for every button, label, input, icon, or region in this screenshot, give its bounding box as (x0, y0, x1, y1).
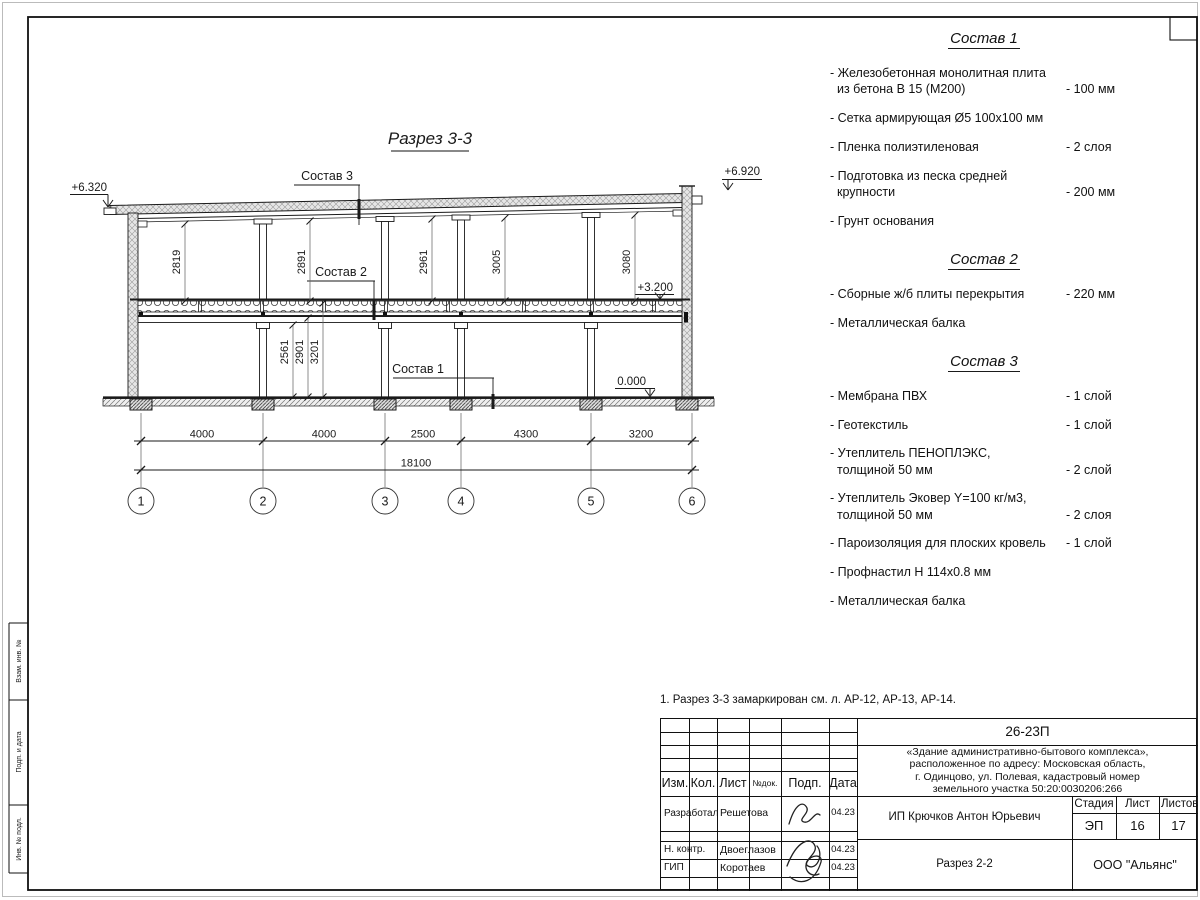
spec-item: - Геотекстиль- 1 слой (830, 417, 1138, 433)
spec-value: - 1 слой (1066, 535, 1138, 551)
tb-sheets-value: 17 (1159, 813, 1198, 839)
tb-sheet-title: Разрез 2-2 (857, 839, 1072, 891)
tb-name: Двоеглазов (717, 841, 784, 859)
tb-header-list: Лист (717, 771, 749, 796)
right-wall (682, 186, 692, 398)
sostav3-label: Состав 3 (301, 169, 353, 183)
tb-header-ndok: №док. (749, 771, 781, 796)
spec-item: - Железобетонная монолитная плитаиз бето… (830, 65, 1138, 98)
room-height-dim: 3080 (621, 250, 633, 274)
tb-header-kol: Кол. (689, 771, 717, 796)
view-title: Разрез 3-3 (388, 129, 473, 148)
tb-doc-code: 26-23П (857, 719, 1198, 745)
tb-company: ООО "Альянс" (1072, 839, 1198, 891)
sostav2-label: Состав 2 (315, 265, 367, 279)
lower-dim-chains: 2561 2901 3201 (279, 300, 327, 401)
elevation-right: +6.920 (725, 166, 761, 178)
spec-item: - Профнастил Н 114х0.8 мм (830, 564, 1138, 580)
tb-name: Решетова (717, 796, 784, 831)
tb-role: Н. контр. (661, 841, 720, 859)
tb-header-data: Дата (829, 771, 857, 796)
sheet-note: 1. Разрез 3-3 замаркирован см. л. АР-12,… (660, 694, 956, 706)
signature-1 (789, 804, 820, 824)
stamp-label: Подп. и дата (16, 731, 23, 772)
axis-bubbles (128, 488, 705, 514)
span-dim: 2500 (411, 429, 435, 441)
span-dim: 3200 (629, 429, 653, 441)
signature-3 (790, 856, 821, 882)
corner-stamp-box (1170, 17, 1197, 40)
room-height-dim: 2819 (171, 250, 183, 274)
signature-2 (787, 841, 820, 867)
axis-number: 2 (260, 495, 267, 509)
title-block: Изм. Кол. Лист №док. Подп. Дата Разработ… (660, 718, 1197, 890)
spec-item: - Сборные ж/б плиты перекрытия- 220 мм (830, 286, 1138, 302)
upper-dim-chains: 2819 2891 2961 3005 3080 (171, 212, 639, 305)
total-dim: 18100 (401, 458, 432, 470)
span-dim: 4000 (190, 429, 214, 441)
tb-project-name: «Здание административно-бытового комплек… (857, 745, 1198, 796)
spec-value: - 1 слой (1066, 388, 1138, 404)
spec-item: - Мембрана ПВХ- 1 слой (830, 388, 1138, 404)
tb-date: 04.23 (829, 841, 857, 859)
spec-item: - Утеплитель ПЕНОПЛЭКС,толщиной 50 мм- 2… (830, 445, 1138, 478)
tb-sheets-label: Листов (1159, 796, 1200, 813)
tb-date: 04.23 (829, 796, 857, 831)
spec-item: - Пароизоляция для плоских кровель- 1 сл… (830, 535, 1138, 551)
tb-role: ГИП (661, 859, 720, 877)
spec-value: - 200 мм (1066, 184, 1138, 200)
layer-spec-lists: Состав 1 - Железобетонная монолитная пли… (830, 30, 1138, 622)
tb-stage-value: ЭП (1072, 813, 1116, 839)
spec-item: - Грунт основания (830, 213, 1138, 229)
room-height-dim: 2961 (418, 250, 430, 274)
drawing-sheet: { "drawing": { "title": "Разрез 3-3", "e… (0, 0, 1200, 900)
spec-heading: Состав 3 (830, 353, 1138, 370)
left-wall (128, 213, 138, 398)
room-height-dim: 2891 (296, 250, 308, 274)
spec-item: - Подготовка из песка среднейкрупности- … (830, 168, 1138, 201)
axis-number: 4 (458, 495, 465, 509)
room-height-dim: 3005 (491, 250, 503, 274)
span-dim: 4000 (312, 429, 336, 441)
tb-date: 04.23 (829, 859, 857, 877)
spec-heading: Состав 1 (830, 30, 1138, 47)
spec-value: - 2 слоя (1066, 507, 1138, 523)
spec-value: - 1 слой (1066, 417, 1138, 433)
bottom-dimensions: 4000 4000 2500 4300 3200 18100 1 2 3 4 5… (128, 413, 705, 514)
spec-value: - 220 мм (1066, 286, 1138, 302)
spec-item: - Пленка полиэтиленовая- 2 слоя (830, 139, 1138, 155)
tb-stage-label: Стадия (1072, 796, 1116, 813)
room-height-dim: 2561 (279, 340, 291, 364)
elevation-left: +6.320 (72, 182, 108, 194)
room-height-dim: 3201 (309, 340, 321, 364)
signatures (781, 796, 829, 891)
tb-header-podp: Подп. (781, 771, 829, 796)
spec-item: - Металлическая балка (830, 593, 1138, 609)
axis-number: 3 (382, 495, 389, 509)
tb-client: ИП Крючков Антон Юрьевич (857, 796, 1072, 839)
axis-number: 5 (588, 495, 595, 509)
tb-role: Разработал (661, 796, 720, 831)
tb-sheet-value: 16 (1116, 813, 1159, 839)
room-height-dim: 2901 (294, 340, 306, 364)
stamp-label: Инв. № подл. (16, 817, 23, 861)
spec-heading: Состав 2 (830, 251, 1138, 268)
spec-item: - Сетка армирующая Ø5 100х100 мм (830, 110, 1138, 126)
axis-number: 6 (689, 495, 696, 509)
elevation-zero: 0.000 (617, 376, 646, 388)
elevation-floor: +3.200 (638, 282, 674, 294)
spec-item: - Металлическая балка (830, 315, 1138, 331)
tb-header-izm: Изм. (661, 771, 689, 796)
spec-value: - 2 слой (1066, 462, 1138, 478)
hollow-core-slab (138, 301, 682, 312)
sostav1-label: Состав 1 (392, 362, 444, 376)
spec-value: - 2 слоя (1066, 139, 1138, 155)
stamp-label: Взам. инв. № (16, 639, 23, 682)
ground-slab (103, 399, 714, 406)
spec-item: - Утеплитель Эковер Y=100 кг/м3,толщиной… (830, 490, 1138, 523)
spec-value: - 100 мм (1066, 81, 1138, 97)
tb-name: Коротаев (717, 859, 784, 877)
axis-number: 1 (138, 495, 145, 509)
tb-sheet-label: Лист (1116, 796, 1159, 813)
span-dim: 4300 (514, 429, 538, 441)
